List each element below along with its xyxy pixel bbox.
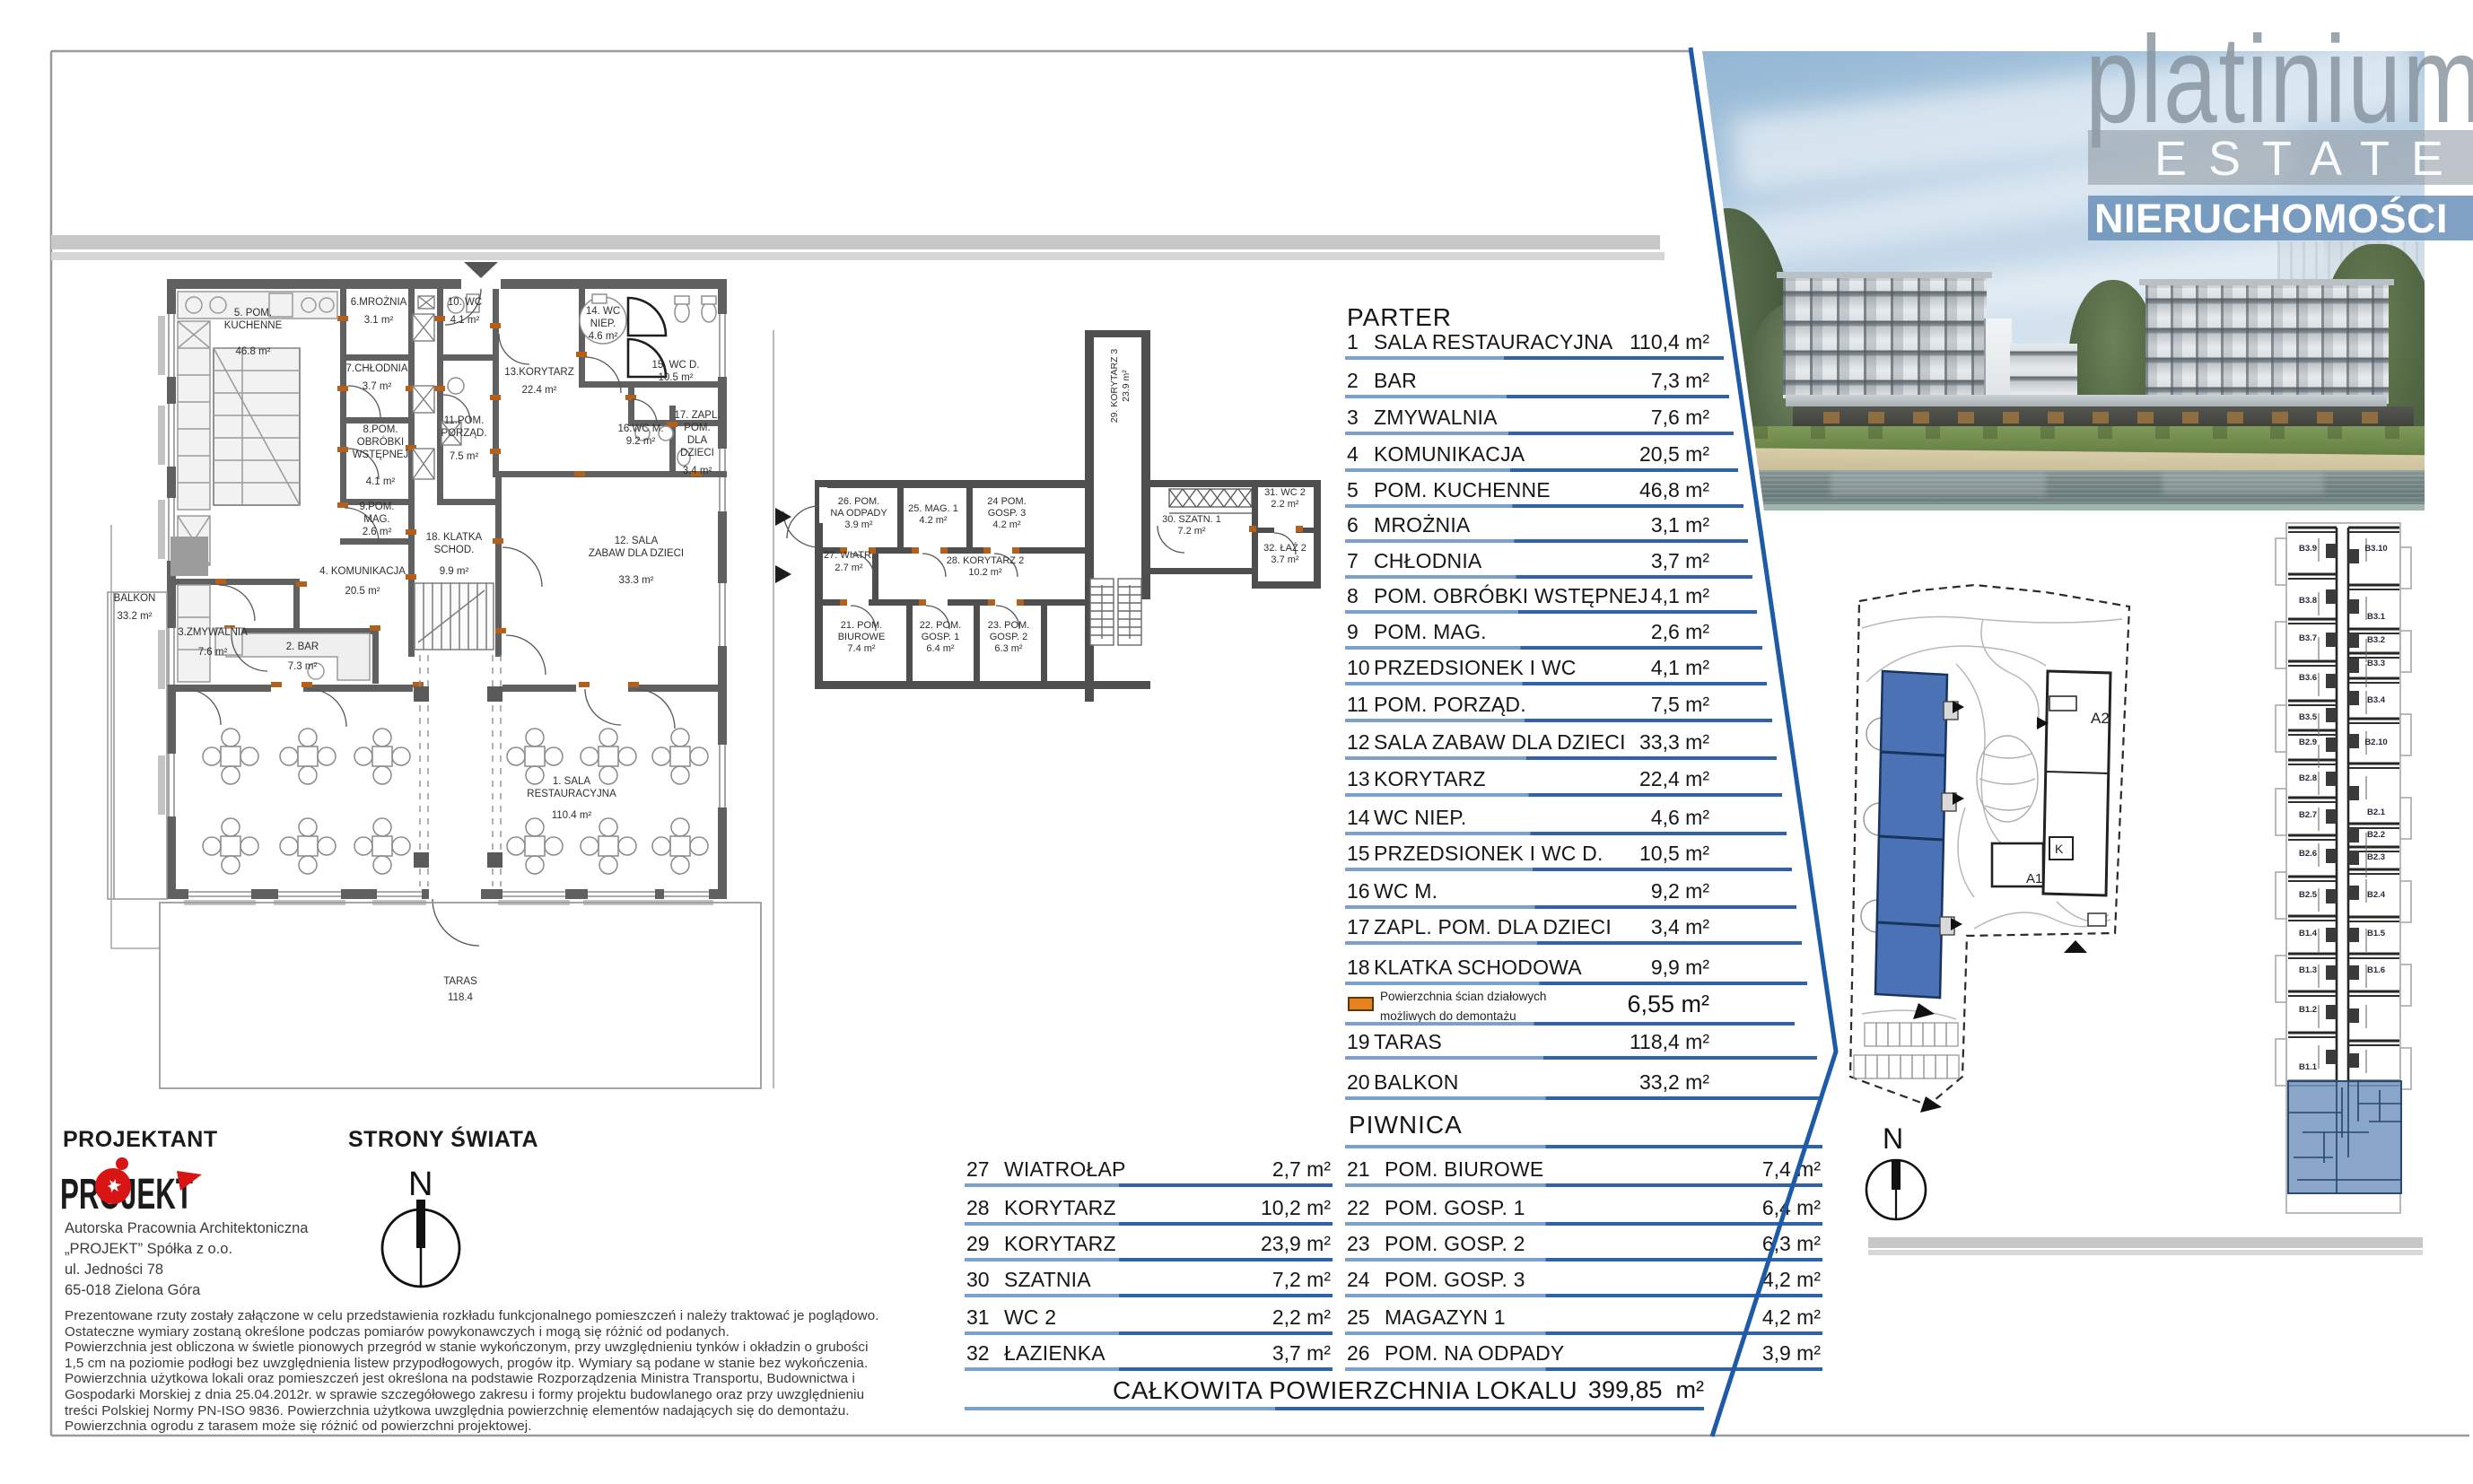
- svg-text:3.ZMYWALNIA: 3.ZMYWALNIA: [178, 627, 248, 638]
- svg-text:B3.2: B3.2: [2367, 635, 2385, 645]
- svg-text:21. POM.: 21. POM.: [841, 620, 882, 631]
- svg-text:B2.2: B2.2: [2367, 830, 2385, 840]
- svg-text:10. WC: 10. WC: [448, 297, 482, 308]
- svg-text:14. WC: 14. WC: [586, 306, 620, 317]
- svg-text:4.1 m²: 4.1 m²: [450, 315, 480, 326]
- svg-text:B1.3: B1.3: [2299, 965, 2317, 975]
- svg-text:B1.1: B1.1: [2299, 1062, 2318, 1072]
- svg-text:12. SALA: 12. SALA: [615, 536, 659, 546]
- svg-text:RESTAURACYJNA: RESTAURACYJNA: [527, 789, 616, 799]
- svg-text:GOSP. 2: GOSP. 2: [990, 632, 1028, 642]
- svg-text:POM.: POM.: [684, 423, 710, 433]
- svg-text:33.3 m²: 33.3 m²: [619, 575, 654, 586]
- svg-text:BIUROWE: BIUROWE: [838, 632, 886, 642]
- svg-text:15. WC D.: 15. WC D.: [651, 360, 699, 371]
- svg-text:23.9 m²: 23.9 m²: [1121, 370, 1132, 402]
- svg-text:B1.4: B1.4: [2299, 929, 2318, 938]
- svg-text:32. ŁAŹ 2: 32. ŁAŹ 2: [1263, 542, 1306, 554]
- svg-text:DLA: DLA: [687, 435, 708, 446]
- svg-text:PORZĄD.: PORZĄD.: [441, 428, 486, 439]
- svg-text:6.4 m²: 6.4 m²: [926, 643, 955, 654]
- svg-text:B1.2: B1.2: [2299, 1005, 2317, 1015]
- svg-text:N: N: [408, 1165, 433, 1203]
- svg-text:17. ZAPL.: 17. ZAPL.: [674, 410, 720, 421]
- svg-text:4.6 m²: 4.6 m²: [589, 331, 618, 342]
- svg-text:3.9 m²: 3.9 m²: [844, 519, 873, 530]
- svg-text:4.2 m²: 4.2 m²: [919, 515, 948, 526]
- svg-text:5. POM.: 5. POM.: [234, 308, 272, 319]
- svg-text:13.KORYTARZ: 13.KORYTARZ: [504, 367, 574, 378]
- svg-text:B3.3: B3.3: [2367, 659, 2385, 668]
- svg-text:B3.10: B3.10: [2364, 544, 2387, 554]
- svg-text:NA ODPADY: NA ODPADY: [830, 508, 887, 519]
- svg-text:6.MROŻNIA: 6.MROŻNIA: [351, 296, 407, 308]
- svg-text:B2.8: B2.8: [2299, 773, 2317, 783]
- svg-text:B3.8: B3.8: [2299, 596, 2317, 606]
- svg-text:3.7 m²: 3.7 m²: [363, 381, 392, 392]
- svg-text:1. SALA: 1. SALA: [553, 776, 591, 787]
- svg-text:GOSP. 3: GOSP. 3: [988, 508, 1027, 519]
- svg-text:3.4 m²: 3.4 m²: [683, 466, 712, 476]
- svg-text:31. WC 2: 31. WC 2: [1264, 487, 1306, 498]
- svg-text:N: N: [1883, 1122, 1903, 1155]
- svg-text:GOSP. 1: GOSP. 1: [922, 632, 960, 642]
- svg-text:7.4 m²: 7.4 m²: [847, 643, 876, 654]
- svg-text:27. WIATR.: 27. WIATR.: [824, 550, 874, 561]
- svg-text:B3.4: B3.4: [2367, 695, 2386, 705]
- svg-text:10.2 m²: 10.2 m²: [968, 567, 1002, 578]
- svg-text:B1.5: B1.5: [2367, 929, 2386, 938]
- svg-text:TARAS: TARAS: [443, 976, 477, 987]
- svg-text:9.2 m²: 9.2 m²: [626, 436, 656, 447]
- svg-text:18. KLATKA: 18. KLATKA: [426, 532, 483, 543]
- svg-text:ZABAW DLA DZIECI: ZABAW DLA DZIECI: [589, 548, 684, 559]
- svg-text:7.CHŁODNIA: 7.CHŁODNIA: [345, 363, 407, 374]
- svg-text:B2.5: B2.5: [2299, 890, 2318, 900]
- svg-text:A2: A2: [2091, 710, 2110, 727]
- svg-text:B2.9: B2.9: [2299, 738, 2317, 747]
- svg-text:B2.4: B2.4: [2367, 890, 2386, 900]
- svg-text:29. KORYTARZ 3: 29. KORYTARZ 3: [1109, 349, 1120, 423]
- svg-text:7.5 m²: 7.5 m²: [450, 451, 479, 462]
- svg-text:B3.9: B3.9: [2299, 544, 2317, 554]
- svg-text:NIEP.: NIEP.: [590, 319, 616, 329]
- svg-text:20.5 m²: 20.5 m²: [345, 586, 380, 597]
- svg-text:B1.6: B1.6: [2367, 965, 2385, 975]
- svg-text:MAG.: MAG.: [363, 514, 389, 525]
- svg-text:8.POM.: 8.POM.: [363, 424, 398, 435]
- svg-text:KUCHENNE: KUCHENNE: [224, 320, 283, 331]
- svg-text:3.7 m²: 3.7 m²: [1271, 554, 1299, 565]
- svg-text:2.2 m²: 2.2 m²: [1271, 499, 1299, 510]
- svg-text:23. POM.: 23. POM.: [988, 620, 1029, 631]
- svg-text:BALKON: BALKON: [114, 593, 156, 604]
- svg-text:9.9 m²: 9.9 m²: [440, 566, 469, 577]
- svg-text:K: K: [2055, 842, 2064, 856]
- svg-text:7.3 m²: 7.3 m²: [288, 661, 318, 672]
- svg-text:33.2 m²: 33.2 m²: [118, 611, 153, 622]
- svg-text:DZIECI: DZIECI: [680, 448, 714, 458]
- svg-text:6.3 m²: 6.3 m²: [994, 643, 1023, 654]
- svg-text:9.POM.: 9.POM.: [360, 502, 395, 512]
- svg-text:B2.1: B2.1: [2367, 807, 2386, 817]
- svg-text:B3.6: B3.6: [2299, 673, 2317, 683]
- svg-text:B3.1: B3.1: [2367, 612, 2386, 622]
- svg-text:25. MAG. 1: 25. MAG. 1: [908, 503, 958, 514]
- svg-text:3.1 m²: 3.1 m²: [364, 315, 394, 326]
- svg-text:B2.6: B2.6: [2299, 849, 2317, 859]
- svg-text:16.WC M.: 16.WC M.: [617, 423, 663, 434]
- svg-text:4.2 m²: 4.2 m²: [992, 519, 1021, 530]
- svg-text:22. POM.: 22. POM.: [920, 620, 961, 631]
- svg-text:7.6 m²: 7.6 m²: [198, 647, 228, 658]
- svg-text:OBRÓBKI: OBRÓBKI: [357, 436, 404, 448]
- svg-text:2.6 m²: 2.6 m²: [363, 527, 392, 537]
- svg-text:SCHOD.: SCHOD.: [434, 545, 475, 555]
- svg-text:26. POM.: 26. POM.: [838, 496, 879, 507]
- svg-text:46.8 m²: 46.8 m²: [236, 346, 271, 357]
- svg-text:110.4 m²: 110.4 m²: [552, 810, 592, 821]
- svg-text:A1: A1: [2026, 871, 2042, 886]
- svg-text:4.1 m²: 4.1 m²: [366, 476, 396, 487]
- svg-text:B2.10: B2.10: [2364, 738, 2387, 747]
- svg-text:2.7 m²: 2.7 m²: [835, 563, 863, 573]
- svg-text:2. BAR: 2. BAR: [286, 642, 319, 652]
- svg-text:B3.7: B3.7: [2299, 633, 2317, 643]
- svg-text:B2.7: B2.7: [2299, 810, 2317, 820]
- svg-text:24 POM.: 24 POM.: [987, 496, 1026, 507]
- svg-text:B2.3: B2.3: [2367, 852, 2385, 862]
- svg-text:4. KOMUNIKACJA: 4. KOMUNIKACJA: [319, 566, 406, 577]
- svg-text:WSTĘPNEJ: WSTĘPNEJ: [353, 450, 409, 460]
- svg-text:7.2 m²: 7.2 m²: [1177, 526, 1206, 537]
- svg-text:118.4: 118.4: [448, 992, 474, 1003]
- svg-text:30. SZATN. 1: 30. SZATN. 1: [1162, 514, 1221, 525]
- svg-text:28. KORYTARZ 2: 28. KORYTARZ 2: [947, 555, 1024, 566]
- svg-text:B3.5: B3.5: [2299, 712, 2318, 722]
- svg-text:10.5 m²: 10.5 m²: [659, 372, 694, 383]
- svg-text:11.POM.: 11.POM.: [444, 415, 485, 426]
- svg-text:22.4 m²: 22.4 m²: [522, 385, 557, 396]
